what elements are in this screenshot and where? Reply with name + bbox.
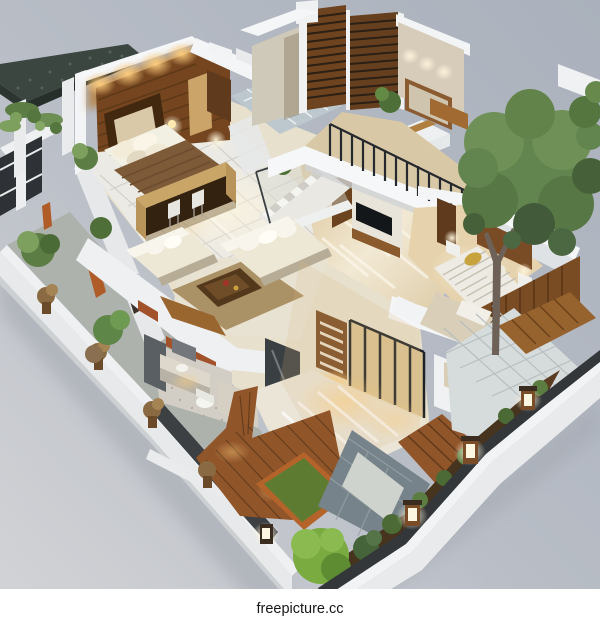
svg-text:freepicture.cc: freepicture.cc xyxy=(256,601,343,617)
